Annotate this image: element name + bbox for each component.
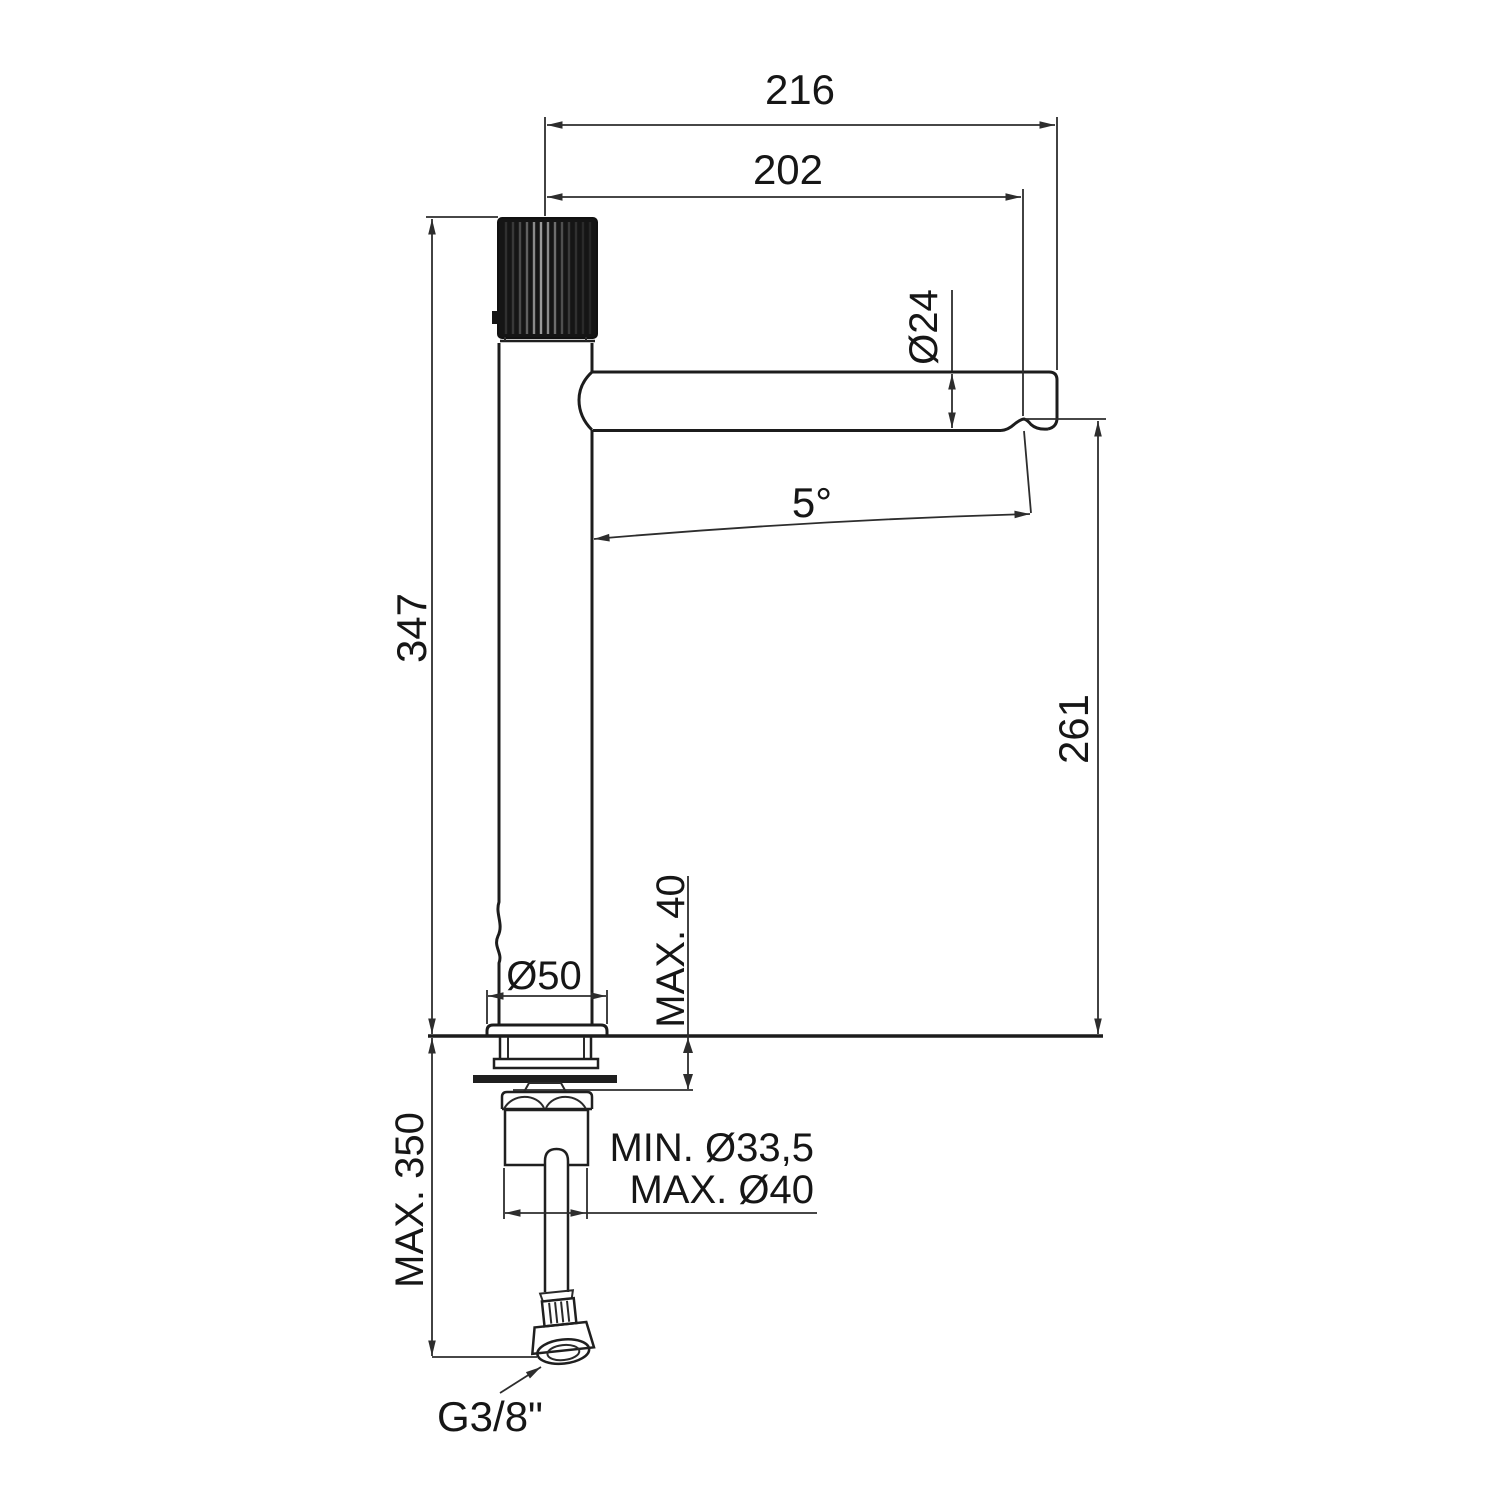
dim-label-216: 216 [765,66,835,113]
dim-label-max350: MAX. 350 [388,1112,432,1288]
dim-label-o24: Ø24 [902,289,946,365]
dim-label-261: 261 [1050,694,1097,764]
dim-label-hole-max: MAX. Ø40 [629,1168,814,1212]
mounting-nut-chamfer-right [546,1097,586,1109]
collar-rib [555,1302,557,1323]
collar-rib [561,1302,563,1323]
dim-label-o50: Ø50 [506,954,582,998]
dim-ext-tilt [1024,431,1031,513]
spout-tip-edge [1048,372,1057,429]
faucet-handle [492,218,597,341]
dim-supply-thread: G3/8" [437,1367,543,1440]
dim-label-347: 347 [388,593,435,663]
dim-arrow-max40-down [683,1074,693,1089]
dimension-annotations: 216 202 Ø24 5° 347 2 [388,66,1106,1440]
dim-outlet-height: 261 [1025,419,1106,1034]
dim-spout-tilt: 5° [594,431,1031,539]
technical-drawing-page: 216 202 Ø24 5° 347 2 [0,0,1500,1500]
dim-label-g38: G3/8" [437,1393,543,1440]
hose-tube [545,1149,568,1292]
dim-hose-drop: MAX. 350 [388,1038,537,1357]
supply-hose [526,1149,595,1367]
dim-label-max40: MAX. 40 [649,874,693,1027]
connector-collar [542,1298,576,1326]
handle-side-detail [492,311,499,324]
dim-leader-g38 [500,1367,541,1393]
mounting-nut-chamfer-left [504,1097,544,1109]
technical-drawing-canvas: 216 202 Ø24 5° 347 2 [0,0,1500,1500]
collar-rib [549,1303,551,1324]
dim-total-height: 347 [388,217,498,1034]
dim-label-5deg: 5° [792,479,832,526]
spout-root-arc [579,372,592,430]
base-flange [487,1025,607,1035]
dim-label-202: 202 [753,146,823,193]
mounting-hardware [473,1037,617,1165]
hose-connector [526,1289,595,1367]
dim-mounting-hole: MIN. Ø33,5 MAX. Ø40 [504,1126,817,1219]
faucet-spout [592,372,1057,431]
dim-label-hole-min: MIN. Ø33,5 [609,1126,814,1170]
faucet-body [497,343,592,1025]
dim-spout-diameter: Ø24 [902,289,952,428]
body-left-edge [497,343,501,1025]
dim-base-diameter: Ø50 [487,954,607,1024]
mounting-washer [494,1059,598,1068]
dim-total-reach: 216 [545,66,1057,370]
dim-arrow-max40-up [683,1038,693,1053]
collar-rib [567,1301,569,1322]
spout-outlet-notch [1001,419,1048,431]
mounting-seal [473,1075,617,1083]
